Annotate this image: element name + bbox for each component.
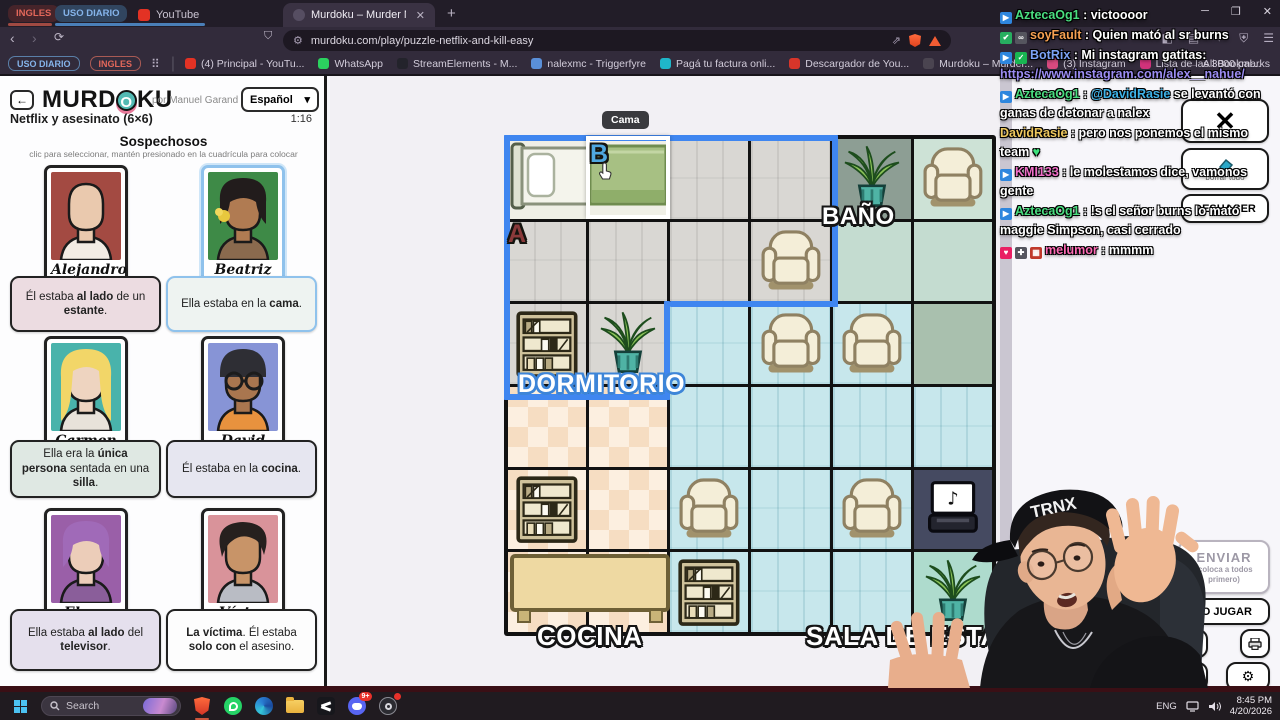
site-settings-icon[interactable]: ⚙ <box>293 34 303 47</box>
chat-username[interactable]: KMI133 <box>1015 165 1059 179</box>
clue-beatriz: Ella estaba en la cama. <box>166 276 317 332</box>
taskbar-icon-folder[interactable] <box>285 696 305 716</box>
hidden-button-1[interactable] <box>1166 629 1208 658</box>
brave-shield-icon[interactable]: 2 <box>909 34 921 47</box>
chat-username[interactable]: melumor <box>1045 243 1098 257</box>
room-label-dormitorio: DORMITORIO <box>518 370 685 399</box>
bookmark-item[interactable]: StreamElements - M... <box>397 58 517 70</box>
taskbar-icon-discord[interactable]: 9+ <box>347 696 367 716</box>
room-highlight-segment <box>504 135 838 141</box>
how-to-play-button[interactable]: CÓMO JUGAR <box>1158 598 1270 625</box>
bookmark-icon[interactable]: ⛉ <box>264 30 272 43</box>
grid-cell-r2c4[interactable] <box>751 222 829 302</box>
grid-cell-r1c6[interactable] <box>914 139 992 219</box>
taskbar: Search 9+ ENG 8:45 PM 4/20/2026 <box>0 692 1280 720</box>
submit-button[interactable]: ENVIAR (coloca a todos primero) <box>1178 540 1270 594</box>
tab-group-uso-diario[interactable]: USO DIARIO <box>55 5 127 22</box>
back-icon[interactable]: ‹ <box>10 30 15 46</box>
chat-username[interactable]: soyFault <box>1030 28 1081 42</box>
chat-username[interactable]: AztecaOg1 <box>1015 8 1080 22</box>
room-highlight-segment <box>670 301 838 307</box>
murdoku-favicon <box>293 9 305 21</box>
bookmark-favicon <box>789 58 800 69</box>
timer: 1:16 <box>291 113 312 125</box>
suspect-portrait <box>51 515 121 603</box>
chat-badge: ✚ <box>1015 247 1027 259</box>
taskbar-icon-whatsapp[interactable] <box>223 696 243 716</box>
chat-badge: ✓ <box>1015 52 1027 64</box>
chat-message: ▶AztecaOg1 : victoooor <box>1000 6 1276 25</box>
suspects-hint: clic para seleccionar, mantén presionado… <box>0 149 327 159</box>
logo-o-character: O <box>116 90 137 111</box>
clue-víctor: La víctima. Él estaba solo con el asesin… <box>166 609 317 671</box>
grid-cell-r1c4[interactable] <box>751 139 829 219</box>
chat-badge: ▶ <box>1000 52 1012 64</box>
game-back-button[interactable]: ← <box>10 90 34 110</box>
volume-icon[interactable] <box>1208 701 1221 712</box>
svg-text:♪: ♪ <box>947 488 958 509</box>
tab-youtube[interactable]: YouTube <box>128 3 209 27</box>
grid-cell-r3c6[interactable] <box>914 304 992 384</box>
suspect-portrait <box>51 172 121 260</box>
game-board-area: Cama ♪ BABAÑODORMITORIOCOCINASALA DE EST… <box>330 76 1000 688</box>
chair-sprite <box>833 304 911 384</box>
grid-cell-r3c4[interactable] <box>751 304 829 384</box>
suspect-card-beatriz[interactable]: Beatriz <box>201 165 285 283</box>
chat-username[interactable]: BotRix <box>1030 48 1070 62</box>
brave-rewards-icon[interactable] <box>929 36 941 46</box>
chat-badge: ✔ <box>1000 32 1012 44</box>
bookmark-item[interactable]: WhatsApp <box>318 58 382 70</box>
chat-badge: ▶ <box>1000 12 1012 24</box>
suspects-heading: Sospechosos <box>0 134 327 149</box>
bookmark-favicon <box>531 58 542 69</box>
chat-message: DavidRasie : pero nos ponemos el mismo t… <box>1000 124 1276 162</box>
room-label-sala-de-estar: SALA DE ESTAR <box>806 621 1019 652</box>
grid-cell-r5c1[interactable] <box>508 470 586 550</box>
chat-username[interactable]: DavidRasie <box>1000 126 1067 140</box>
chat-badge: ▶ <box>1000 208 1012 220</box>
grid-cell-r4c5[interactable] <box>833 387 911 467</box>
shelf-sprite <box>670 552 748 632</box>
chat-message: ▶✓BotRix : Mi instagram gatitas: https:/… <box>1000 46 1276 84</box>
chat-username[interactable]: AztecaOg1 <box>1015 87 1080 101</box>
screen: INGLES USO DIARIO YouTube Murdoku – Murd… <box>0 0 1280 720</box>
chair-sprite <box>670 470 748 550</box>
clue-alejandro: Él estaba al lado de un estante. <box>10 276 161 332</box>
system-tray: ENG 8:45 PM 4/20/2026 <box>1156 692 1272 720</box>
chat-message: ▶AztecaOg1 : !s el señor burns lo mató m… <box>1000 202 1276 240</box>
chat-message: ✔∞soyFault : Quien mató al sr burns <box>1000 26 1276 45</box>
reload-icon[interactable]: ⟳ <box>54 30 64 44</box>
grid-cell-r2c3[interactable] <box>670 222 748 302</box>
chevron-down-icon: ▾ <box>304 93 310 106</box>
search-highlight-image <box>143 698 177 714</box>
grid-cell-r2c2[interactable] <box>589 222 667 302</box>
taskbar-icon-edge[interactable] <box>254 696 274 716</box>
chair-sprite <box>751 222 829 302</box>
chat-badge: ▦ <box>1030 247 1042 259</box>
suspects-panel: ← MURDOKU por Manuel Garand Español ▾ Ne… <box>0 76 327 688</box>
grid-cell-r5c5[interactable] <box>833 470 911 550</box>
apps-grid-icon[interactable]: ⠿ <box>151 57 161 71</box>
url-bar[interactable]: ⚙ murdoku.com/play/puzzle-netflix-and-ki… <box>283 30 951 51</box>
suspect-card-alejandro[interactable]: Alejandro <box>44 165 128 283</box>
chair-sprite <box>914 139 992 219</box>
bookmark-item[interactable]: (4) Principal - YouTu... <box>185 58 305 70</box>
taskbar-icon-obs[interactable] <box>378 696 398 716</box>
language-select[interactable]: Español ▾ <box>241 87 319 112</box>
puzzle-title: Netflix y asesinato (6×6) <box>10 112 153 126</box>
bookmark-favicon <box>660 58 671 69</box>
taskbar-icon-capcut[interactable] <box>316 696 336 716</box>
start-button[interactable] <box>14 700 27 713</box>
bookmark-item[interactable]: Descargador de You... <box>789 58 909 70</box>
bookmark-favicon <box>318 58 329 69</box>
chat-badge: ∞ <box>1015 32 1027 44</box>
clock[interactable]: 8:45 PM 4/20/2026 <box>1230 695 1272 717</box>
bookmark-item[interactable]: Pagá tu factura onli... <box>660 58 775 70</box>
suspect-portrait <box>208 343 278 431</box>
cell-tooltip: Cama <box>602 111 649 129</box>
forward-icon[interactable]: › <box>32 30 37 46</box>
room-highlight-segment <box>504 135 510 400</box>
suspect-portrait <box>208 172 278 260</box>
tab-close-icon[interactable]: ✕ <box>416 9 425 22</box>
grid-cell-r4c6[interactable] <box>914 387 992 467</box>
new-tab-button[interactable]: + <box>447 5 456 22</box>
search-icon <box>50 701 60 711</box>
grid-cell-r1c3[interactable] <box>670 139 748 219</box>
grid-cell-r2c5[interactable] <box>833 222 911 302</box>
chair-sprite <box>833 470 911 550</box>
shelf-sprite <box>508 470 586 550</box>
bookmark-favicon <box>185 58 196 69</box>
url-text: murdoku.com/play/puzzle-netflix-and-kill… <box>311 35 884 47</box>
grid-cell-r5c3[interactable] <box>670 470 748 550</box>
chat-badge: ♥ <box>1000 247 1012 259</box>
share-icon[interactable]: ⇗ <box>892 34 901 47</box>
grid-cell-r5c6[interactable]: ♪ <box>914 470 992 550</box>
counter-sprite <box>508 550 672 630</box>
grid-cell-r5c4[interactable] <box>751 470 829 550</box>
suspect-card-david[interactable]: David <box>201 336 285 454</box>
printer-icon <box>1248 638 1262 650</box>
clue-david: Él estaba en la cocina. <box>166 440 317 498</box>
suspect-card-carmen[interactable]: Carmen <box>44 336 128 454</box>
suspect-portrait <box>208 515 278 603</box>
bookmark-item[interactable]: nalexmc - Triggerfyre <box>531 58 646 70</box>
youtube-favicon <box>138 9 150 21</box>
suspect-portrait <box>51 343 121 431</box>
room-label-baño: BAÑO <box>822 203 895 231</box>
taskbar-icon-brave[interactable] <box>192 696 212 716</box>
bookmark-favicon <box>397 58 408 69</box>
taskbar-search[interactable]: Search <box>41 696 181 716</box>
mouse-cursor-hand <box>598 162 613 186</box>
grid-cell-r2c6[interactable] <box>914 222 992 302</box>
chat-badge: ▶ <box>1000 169 1012 181</box>
author-byline: por Manuel Garand <box>152 95 238 106</box>
chat-message: ♥✚▦melumor : mmmm <box>1000 241 1276 260</box>
language-indicator[interactable]: ENG <box>1156 701 1177 712</box>
grid-cell-r4c4[interactable] <box>751 387 829 467</box>
tab-group-underline-red <box>8 23 52 26</box>
laptop-sprite: ♪ <box>914 470 992 550</box>
chat-message: ▶AztecaOg1 : @DavidRasie se levantó con … <box>1000 85 1276 123</box>
grid-cell-r5c2[interactable] <box>589 470 667 550</box>
clue-elena: Ella estaba al lado del televisor. <box>10 609 161 671</box>
chat-message: ▶KMI133 : le molestamos dice, vamonos ge… <box>1000 163 1276 201</box>
chat-username[interactable]: AztecaOg1 <box>1015 204 1080 218</box>
bookmark-pill-ingles[interactable]: INGLES <box>90 56 142 71</box>
grid-cell-r3c5[interactable] <box>833 304 911 384</box>
tab-group-ingles[interactable]: INGLES <box>8 5 59 22</box>
print-button[interactable] <box>1240 629 1270 658</box>
bookmark-pill-uso-diario[interactable]: USO DIARIO <box>8 56 80 71</box>
grid-marker-A: A <box>508 220 526 249</box>
grid-cell-r6c3[interactable] <box>670 552 748 632</box>
tab-murdoku-active[interactable]: Murdoku – Murder Mystery mee ✕ <box>283 3 435 27</box>
bookmark-favicon <box>923 58 934 69</box>
chat-overlay: ▶AztecaOg1 : victoooor✔∞soyFault : Quien… <box>1000 6 1276 261</box>
room-label-cocina: COCINA <box>537 621 643 652</box>
chat-badge: ▶ <box>1000 91 1012 103</box>
chair-sprite <box>751 304 829 384</box>
network-icon[interactable] <box>1186 701 1199 712</box>
taskbar-app-icons: 9+ <box>181 696 398 716</box>
clue-carmen: Ella era la única persona sentada en una… <box>10 440 161 498</box>
